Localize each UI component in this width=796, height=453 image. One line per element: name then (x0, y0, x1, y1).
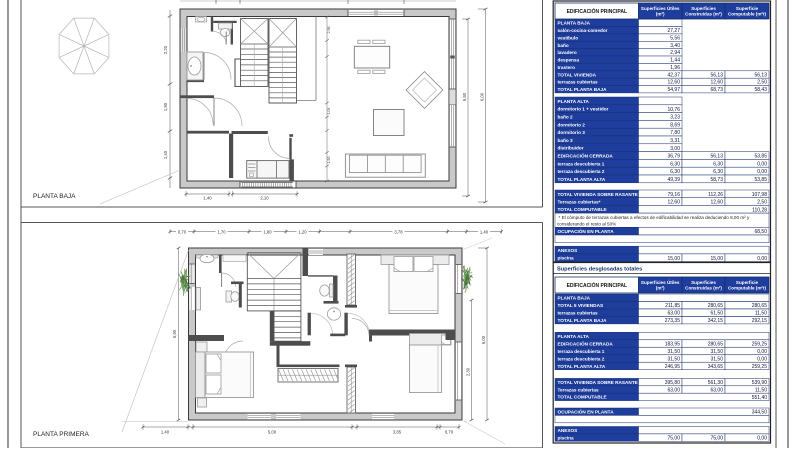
svg-text:1,40: 1,40 (480, 230, 489, 235)
svg-text:TOTAL COMPUTABLE: TOTAL COMPUTABLE (558, 207, 607, 212)
svg-text:PLANTA ALTA: PLANTA ALTA (558, 99, 590, 104)
svg-text:0,00: 0,00 (757, 161, 767, 167)
svg-text:1,04: 1,04 (327, 108, 331, 115)
svg-text:baño: baño (558, 43, 569, 48)
svg-text:1,20: 1,20 (298, 230, 307, 235)
svg-text:OCUPACIÓN EN PLANTA: OCUPACIÓN EN PLANTA (558, 408, 615, 415)
svg-text:3,78: 3,78 (394, 230, 403, 235)
svg-text:piscina: piscina (558, 256, 575, 261)
svg-text:1,44: 1,44 (670, 58, 680, 64)
svg-text:0,00: 0,00 (757, 356, 767, 362)
svg-text:63,00: 63,00 (667, 311, 680, 317)
svg-text:2,20: 2,20 (163, 45, 168, 54)
svg-text:0,70: 0,70 (178, 230, 187, 235)
svg-text:395,80: 395,80 (665, 380, 681, 386)
svg-text:2,96: 2,96 (327, 27, 331, 34)
svg-text:ANEXOS: ANEXOS (558, 428, 578, 433)
svg-text:12,60: 12,60 (667, 200, 680, 206)
svg-text:dormitorio 2: dormitorio 2 (558, 122, 586, 127)
svg-text:5,56: 5,56 (670, 36, 680, 42)
svg-text:PLANTA PRIMERA: PLANTA PRIMERA (33, 431, 90, 438)
svg-text:1,90: 1,90 (163, 102, 168, 111)
svg-text:42,37: 42,37 (667, 72, 680, 78)
svg-text:342,15: 342,15 (708, 318, 724, 324)
svg-text:TOTAL VIVIENDA: TOTAL VIVIENDA (558, 72, 597, 77)
svg-text:6,00: 6,00 (481, 335, 486, 344)
svg-text:11,50: 11,50 (755, 387, 767, 393)
svg-text:75,00: 75,00 (667, 436, 680, 442)
svg-text:6,30: 6,30 (713, 161, 723, 167)
svg-text:1,40: 1,40 (203, 196, 212, 201)
svg-text:distribuidor: distribuidor (558, 146, 584, 151)
svg-text:2,30: 2,30 (466, 367, 471, 376)
svg-text:6,30: 6,30 (670, 161, 680, 167)
svg-text:EDIFICACIÓN PRINCIPAL: EDIFICACIÓN PRINCIPAL (567, 281, 627, 289)
svg-text:273,35: 273,35 (665, 318, 681, 324)
svg-text:15,00: 15,00 (667, 256, 680, 262)
svg-text:343,65: 343,65 (708, 364, 724, 370)
svg-text:TOTAL COMPUTABLE: TOTAL COMPUTABLE (558, 395, 607, 400)
svg-text:280,65: 280,65 (708, 303, 724, 309)
svg-text:0,00: 0,00 (757, 436, 767, 442)
svg-text:salón-cocina-comedor: salón-cocina-comedor (558, 28, 608, 33)
svg-text:TOTAL PLANTA BAJA: TOTAL PLANTA BAJA (558, 318, 608, 323)
svg-text:TOTAL PLANTA BAJA: TOTAL PLANTA BAJA (558, 87, 608, 92)
svg-text:2,50: 2,50 (757, 80, 767, 86)
svg-text:6,30: 6,30 (713, 169, 723, 175)
svg-text:5,90: 5,90 (462, 92, 467, 101)
svg-text:1,40: 1,40 (161, 430, 170, 435)
svg-text:6,00: 6,00 (480, 92, 485, 101)
svg-text:baño 2: baño 2 (558, 115, 573, 120)
svg-text:110,28: 110,28 (752, 207, 767, 213)
svg-text:3,40: 3,40 (670, 43, 680, 49)
svg-text:TOTAL VIVIENDA SOBRE RASANTE: TOTAL VIVIENDA SOBRE RASANTE (558, 192, 638, 197)
svg-text:68,50: 68,50 (754, 229, 767, 235)
svg-text:63,00: 63,00 (667, 387, 680, 393)
svg-text:344,50: 344,50 (752, 410, 768, 416)
svg-text:6,30: 6,30 (670, 169, 680, 175)
svg-text:Construidas (m²): Construidas (m²) (685, 12, 722, 17)
svg-text:2,10: 2,10 (260, 196, 269, 201)
svg-text:246,95: 246,95 (665, 364, 681, 370)
svg-text:259,25: 259,25 (752, 341, 768, 347)
svg-text:10,76: 10,76 (667, 107, 680, 113)
svg-text:539,90: 539,90 (752, 380, 768, 386)
svg-text:183,95: 183,95 (665, 341, 681, 347)
svg-text:TOTAL VIVIENDA SOBRE RASANTE: TOTAL VIVIENDA SOBRE RASANTE (558, 380, 638, 385)
svg-text:68,73: 68,73 (710, 87, 723, 93)
svg-text:1,80: 1,80 (263, 230, 272, 235)
svg-text:0,00: 0,00 (757, 256, 767, 262)
svg-text:11,50: 11,50 (755, 311, 767, 317)
svg-text:0,70: 0,70 (445, 430, 454, 435)
svg-text:58,73: 58,73 (710, 177, 723, 183)
svg-text:Computable (m²t): Computable (m²t) (728, 286, 766, 291)
svg-text:56,13: 56,13 (754, 72, 767, 78)
svg-text:vestíbulo: vestíbulo (558, 35, 579, 40)
svg-text:TOTAL 5 VIVIENDAS: TOTAL 5 VIVIENDAS (558, 303, 604, 308)
svg-text:211,85: 211,85 (665, 303, 680, 309)
svg-text:OCUPACIÓN EN PLANTA: OCUPACIÓN EN PLANTA (558, 227, 615, 234)
svg-text:3,31: 3,31 (670, 138, 680, 144)
svg-text:dormitorio 1 + vestidor: dormitorio 1 + vestidor (558, 107, 609, 112)
svg-text:piscina: piscina (558, 435, 575, 440)
svg-text:56,13: 56,13 (710, 72, 723, 78)
svg-text:79,16: 79,16 (667, 192, 680, 198)
svg-text:Superficies Útiles: Superficies Útiles (641, 5, 680, 11)
svg-text:31,50: 31,50 (667, 349, 680, 355)
svg-text:561,30: 561,30 (708, 380, 724, 386)
svg-text:551,40: 551,40 (752, 395, 768, 401)
svg-text:PLANTA BAJA: PLANTA BAJA (558, 21, 591, 26)
svg-text:75,00: 75,00 (710, 436, 723, 442)
svg-text:36,79: 36,79 (667, 154, 680, 160)
svg-text:terraza descubierta 2: terraza descubierta 2 (558, 169, 605, 174)
svg-text:107,98: 107,98 (752, 192, 768, 198)
svg-text:5,00: 5,00 (268, 430, 277, 435)
svg-text:TOTAL PLANTA ALTA: TOTAL PLANTA ALTA (558, 364, 606, 369)
svg-text:3,00: 3,00 (670, 146, 680, 152)
svg-text:considerando el resto al 50%: considerando el resto al 50% (557, 222, 616, 227)
svg-text:58,43: 58,43 (754, 87, 767, 93)
svg-text:Computable (m²t): Computable (m²t) (728, 12, 766, 17)
svg-text:8,69: 8,69 (670, 122, 680, 128)
svg-text:31,50: 31,50 (667, 356, 680, 362)
svg-text:5,90: 5,90 (172, 329, 177, 338)
svg-text:terraza descubierta 1: terraza descubierta 1 (558, 349, 605, 354)
svg-text:3,85: 3,85 (393, 430, 402, 435)
svg-text:* El cómputo de terrazas cubie: * El cómputo de terrazas cubiertas a efe… (559, 215, 750, 220)
svg-text:Superficie: Superficie (736, 6, 759, 11)
svg-text:PLANTA BAJA: PLANTA BAJA (33, 193, 76, 200)
svg-text:49,39: 49,39 (667, 177, 680, 183)
svg-text:1,96: 1,96 (670, 65, 680, 71)
svg-text:terrazas cubiertas: terrazas cubiertas (558, 311, 599, 316)
svg-text:53,85: 53,85 (754, 154, 767, 160)
svg-text:lavadero: lavadero (558, 50, 577, 55)
svg-text:Superficies Útiles: Superficies Útiles (641, 279, 680, 285)
svg-text:baño 3: baño 3 (558, 138, 573, 143)
svg-text:31,50: 31,50 (710, 349, 723, 355)
svg-text:Superficies: Superficies (691, 280, 716, 285)
svg-text:Superficies desglosadas totale: Superficies desglosadas totales (557, 267, 642, 273)
svg-text:EDIFICACIÓN CERRADA: EDIFICACIÓN CERRADA (558, 152, 614, 159)
svg-text:PLANTA BAJA: PLANTA BAJA (558, 296, 591, 301)
svg-text:27,27: 27,27 (667, 28, 680, 34)
svg-text:Terrazas cubiertas: Terrazas cubiertas (558, 387, 599, 392)
svg-text:(m²): (m²) (656, 12, 665, 17)
svg-text:EDIFICACIÓN CERRADA: EDIFICACIÓN CERRADA (558, 339, 614, 346)
svg-text:1,50: 1,50 (327, 157, 331, 164)
svg-text:1,40: 1,40 (163, 150, 168, 159)
svg-text:280,65: 280,65 (708, 341, 724, 347)
svg-text:12,60: 12,60 (710, 200, 723, 206)
svg-text:112,26: 112,26 (708, 192, 723, 198)
svg-text:ANEXOS: ANEXOS (558, 248, 578, 253)
svg-text:53,85: 53,85 (754, 177, 767, 183)
svg-text:56,13: 56,13 (710, 154, 723, 160)
svg-text:Superficies: Superficies (691, 6, 716, 11)
svg-text:1,70: 1,70 (217, 230, 226, 235)
svg-text:Superficie: Superficie (736, 280, 759, 285)
svg-text:2,50: 2,50 (757, 200, 767, 206)
svg-text:Terrazas cubiertas*: Terrazas cubiertas* (558, 200, 601, 205)
svg-text:12,60: 12,60 (667, 80, 680, 86)
svg-text:Construidas (m²): Construidas (m²) (685, 286, 722, 291)
svg-text:63,00: 63,00 (710, 387, 723, 393)
svg-text:280,65: 280,65 (752, 303, 768, 309)
svg-text:PLANTA ALTA: PLANTA ALTA (558, 334, 590, 339)
svg-text:2,94: 2,94 (670, 50, 680, 56)
svg-text:terrazas cubiertas: terrazas cubiertas (558, 80, 599, 85)
svg-text:3,23: 3,23 (670, 115, 680, 121)
svg-text:292,15: 292,15 (752, 318, 768, 324)
svg-text:terraza descubierta 2: terraza descubierta 2 (558, 356, 605, 361)
svg-text:(m²): (m²) (656, 286, 665, 291)
svg-text:12,60: 12,60 (710, 80, 723, 86)
svg-text:0,00: 0,00 (757, 349, 767, 355)
svg-text:31,50: 31,50 (710, 356, 723, 362)
svg-text:0,00: 0,00 (757, 169, 767, 175)
svg-text:trastero: trastero (558, 65, 576, 70)
svg-text:despensa: despensa (558, 58, 580, 63)
svg-text:EDIFICACIÓN PRINCIPAL: EDIFICACIÓN PRINCIPAL (567, 7, 627, 15)
svg-text:15,00: 15,00 (710, 256, 723, 262)
svg-text:7,80: 7,80 (670, 130, 680, 136)
svg-text:61,50: 61,50 (710, 311, 723, 317)
svg-text:dormitorio 3: dormitorio 3 (558, 130, 586, 135)
svg-text:54,97: 54,97 (667, 87, 680, 93)
svg-text:259,25: 259,25 (752, 364, 768, 370)
svg-text:terraza descubierta 1: terraza descubierta 1 (558, 161, 605, 166)
svg-text:TOTAL PLANTA ALTA: TOTAL PLANTA ALTA (558, 177, 606, 182)
